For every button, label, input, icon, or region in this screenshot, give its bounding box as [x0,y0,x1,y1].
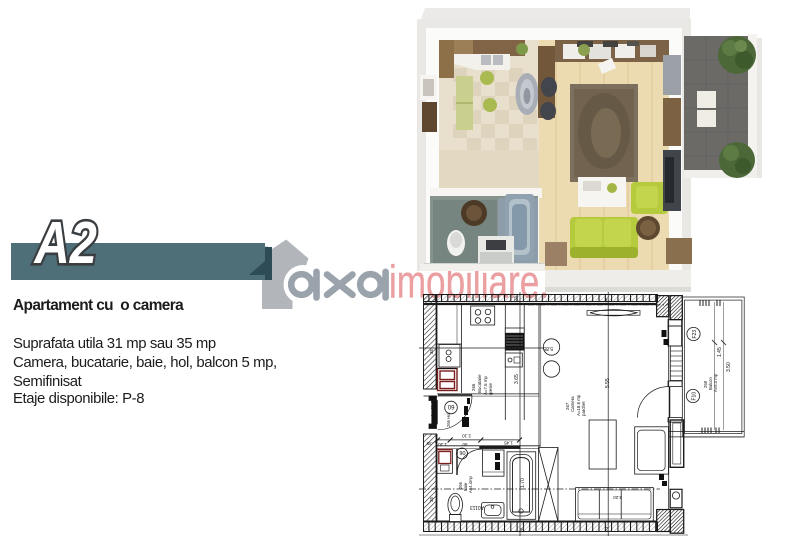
svg-text:24: 24 [605,526,610,532]
svg-text:Ap.42-G: Ap.42-G [430,400,435,417]
svg-text:Bucatarie: Bucatarie [477,374,482,393]
svg-text:1.45: 1.45 [504,441,513,446]
svg-text:F23: F23 [692,330,698,339]
svg-text:3.50: 3.50 [726,362,732,372]
svg-text:35: 35 [429,348,434,354]
svg-text:.35: .35 [426,441,433,446]
svg-text:26: 26 [520,527,525,533]
svg-text:3.20: 3.20 [613,495,622,500]
svg-text:25: 25 [513,295,518,301]
svg-text:Camera: Camera [570,396,575,412]
svg-text:gresie: gresie [488,382,493,395]
svg-text:06: 06 [459,449,465,455]
svg-text:5.85: 5.85 [543,345,553,351]
svg-text:1.70: 1.70 [520,478,526,488]
svg-text:35: 35 [429,496,434,502]
svg-text:A2: A2 [33,209,97,276]
svg-text:80: 80 [462,442,468,447]
svg-text:5.55: 5.55 [605,378,611,388]
svg-text:A=4.4mp: A=4.4mp [468,475,473,493]
svg-text:2.10: 2.10 [462,434,471,439]
svg-text:A=5.0 mp: A=5.0 mp [713,373,718,392]
svg-text:266: 266 [471,383,476,391]
svg-text:F10: F10 [692,392,698,401]
svg-text:1.30: 1.30 [438,442,447,447]
svg-text:parchet: parchet [581,401,586,416]
svg-text:266 Hol: 266 Hol [446,412,451,427]
svg-text:1.45: 1.45 [717,347,723,357]
svg-text:25: 25 [605,297,610,303]
svg-text:60: 60 [447,403,454,409]
svg-text:3.65: 3.65 [514,374,520,384]
